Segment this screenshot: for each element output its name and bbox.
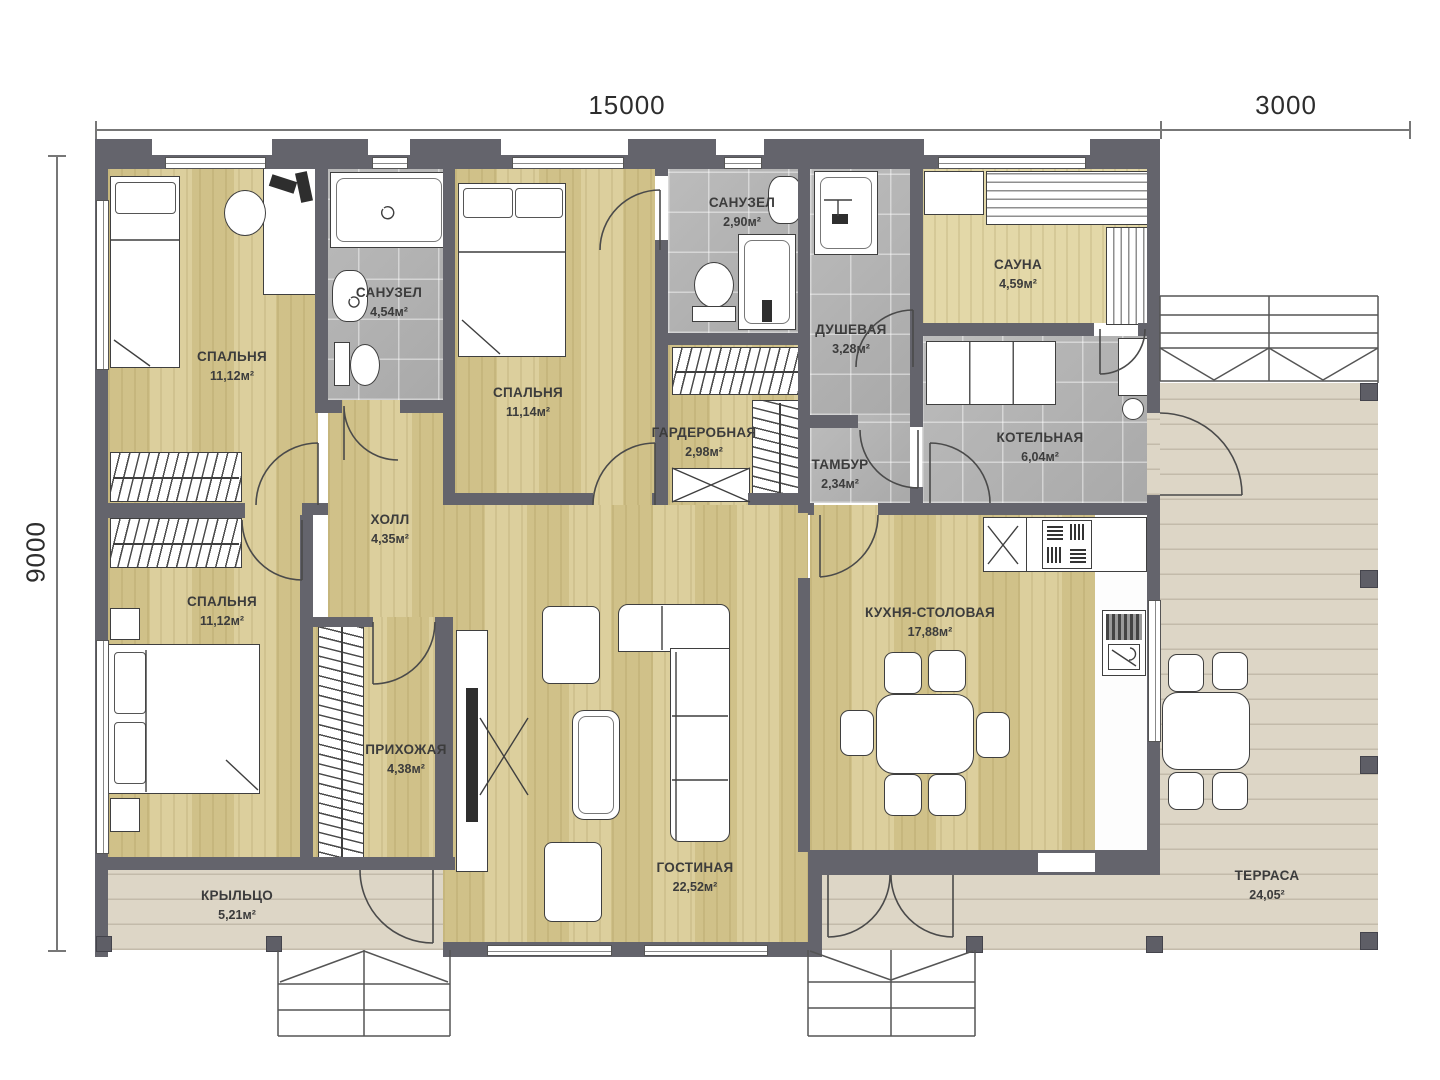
chair-icon — [884, 774, 922, 816]
door-opening-terrace — [1147, 413, 1160, 495]
toilet-tank-icon — [692, 306, 736, 322]
window — [165, 157, 266, 169]
dresser-icon — [672, 468, 750, 502]
shower-tray-icon — [814, 171, 878, 255]
wall — [922, 323, 1094, 336]
wall — [302, 503, 328, 515]
dim-label-main-width: 15000 — [588, 90, 665, 121]
room-label-porch: КРЫЛЬЦО 5,21м² — [201, 886, 273, 924]
dining-table-icon — [876, 694, 974, 774]
terrace-table-icon — [1162, 692, 1250, 770]
room-area: 17,88м² — [865, 623, 995, 641]
sauna-bench-icon — [1106, 227, 1148, 325]
wall-bottom-kitchen — [808, 850, 1160, 875]
terrace-post — [1146, 936, 1163, 953]
room-area: 22,52м² — [657, 878, 734, 896]
room-label-bedroom1: СПАЛЬНЯ 11,12м² — [197, 347, 267, 385]
boiler-tank-icon — [1122, 398, 1144, 420]
tv-icon — [466, 688, 478, 822]
sink-bowl-icon — [1108, 644, 1140, 670]
window — [487, 945, 612, 956]
wall — [798, 578, 810, 852]
floor-plan: 15000 3000 9000 — [0, 0, 1440, 1080]
shower-column-icon — [762, 300, 772, 322]
room-name: СПАЛЬНЯ — [187, 592, 257, 612]
window — [512, 157, 624, 169]
room-area: 2,98м² — [652, 443, 757, 461]
pillow-icon — [114, 722, 146, 784]
porch-post — [266, 936, 282, 952]
room-area: 11,14м² — [493, 403, 563, 421]
room-area: 4,59м² — [994, 275, 1042, 293]
dim-label-terrace-width: 3000 — [1255, 90, 1317, 121]
dim-label-height: 9000 — [21, 521, 52, 583]
burner-icon — [1047, 524, 1063, 540]
sauna-stove-icon — [924, 171, 984, 215]
toilet-tank-icon — [334, 342, 350, 386]
wall — [95, 503, 245, 518]
room-name: ДУШЕВАЯ — [815, 320, 886, 340]
nightstand-icon — [110, 608, 140, 640]
room-area: 2,34м² — [812, 475, 869, 493]
armchair-icon — [544, 842, 602, 922]
dim-tick — [1409, 121, 1411, 139]
chair-icon — [1168, 654, 1204, 692]
wall — [1138, 323, 1148, 336]
window — [938, 157, 1086, 169]
bathtub-icon — [330, 172, 448, 248]
dim-line-top — [95, 129, 1410, 131]
wall — [443, 493, 593, 505]
dim-tick — [48, 155, 66, 157]
wall — [315, 400, 342, 413]
drainer-icon — [1106, 614, 1142, 640]
room-label-bathroom2: САНУЗЕЛ 2,90м² — [709, 193, 775, 231]
wall — [798, 505, 810, 513]
burner-icon — [1070, 547, 1086, 563]
window — [96, 640, 109, 854]
burner-icon — [1047, 547, 1063, 563]
wall — [655, 169, 668, 176]
room-name: ГОСТИНАЯ — [657, 858, 734, 878]
sofa-icon — [670, 648, 730, 842]
pillow-icon — [115, 182, 176, 214]
chair-icon — [1212, 772, 1248, 810]
room-name: САНУЗЕЛ — [709, 193, 775, 213]
terrace-post — [1360, 383, 1378, 401]
room-name: СПАЛЬНЯ — [493, 383, 563, 403]
terrace-post — [1360, 570, 1378, 588]
sofa-icon — [618, 604, 730, 652]
porch-post — [96, 936, 112, 952]
chair-icon — [1212, 652, 1248, 690]
terrace-post — [1360, 932, 1378, 950]
room-label-hall: ХОЛЛ 4,35м² — [371, 510, 410, 548]
room-label-kitchen: КУХНЯ-СТОЛОВАЯ 17,88м² — [865, 603, 995, 641]
closet-icon — [318, 624, 364, 862]
room-label-shower: ДУШЕВАЯ 3,28м² — [815, 320, 886, 358]
wall — [300, 627, 313, 867]
wall — [400, 400, 443, 413]
wall — [300, 515, 313, 627]
wall-bottom-left — [95, 857, 455, 870]
window — [644, 945, 768, 956]
dim-tick — [48, 950, 66, 952]
room-label-terrace: ТЕРРАСА 24,05² — [1235, 866, 1300, 904]
sauna-bench-icon — [986, 171, 1148, 225]
room-label-bedroom3: СПАЛЬНЯ 11,12м² — [187, 592, 257, 630]
room-name: САУНА — [994, 255, 1042, 275]
wall-right — [1147, 155, 1160, 875]
room-label-bathroom1: САНУЗЕЛ 4,54м² — [356, 283, 422, 321]
wall — [655, 333, 810, 345]
wall — [878, 503, 1160, 515]
room-area: 3,28м² — [815, 340, 886, 358]
stairs-icon — [278, 950, 975, 1036]
window — [724, 157, 762, 169]
wall — [303, 617, 373, 627]
wall — [798, 169, 810, 505]
room-label-bedroom2: СПАЛЬНЯ 11,14м² — [493, 383, 563, 421]
burner-icon — [1070, 524, 1086, 540]
room-area: 11,12м² — [187, 612, 257, 630]
room-area: 2,90м² — [709, 213, 775, 231]
room-label-entry: ПРИХОЖАЯ 4,38м² — [365, 740, 446, 778]
window — [1148, 600, 1161, 742]
dim-tick — [95, 121, 97, 139]
dim-tick — [1160, 121, 1162, 139]
terrace-post — [966, 936, 983, 953]
wall — [810, 415, 858, 428]
door-opening-kitchen-terrace — [1038, 853, 1095, 872]
pillow-icon — [114, 652, 146, 714]
nightstand-icon — [110, 798, 140, 832]
room-label-boiler: КОТЕЛЬНАЯ 6,04м² — [996, 428, 1083, 466]
railing-icon — [1160, 296, 1378, 383]
room-area: 4,38м² — [365, 760, 446, 778]
boiler-equipment-icon — [926, 341, 1056, 405]
room-name: САНУЗЕЛ — [356, 283, 422, 303]
dim-line-left — [56, 155, 58, 952]
room-area: 4,35м² — [371, 530, 410, 548]
pillow-icon — [463, 188, 513, 218]
toilet-icon — [350, 344, 380, 386]
wall — [910, 169, 923, 427]
room-label-wardrobe: ГАРДЕРОБНАЯ 2,98м² — [652, 423, 757, 461]
room-area: 4,54м² — [356, 303, 422, 321]
room-label-vestibule: ТАМБУР 2,34м² — [812, 455, 869, 493]
window — [96, 200, 109, 370]
chair-icon — [1168, 772, 1204, 810]
room-area: 11,12м² — [197, 367, 267, 385]
room-name: СПАЛЬНЯ — [197, 347, 267, 367]
room-name: ТЕРРАСА — [1235, 866, 1300, 886]
room-name: ХОЛЛ — [371, 510, 410, 530]
clothes-rail-icon — [672, 347, 806, 395]
room-floor-living — [443, 505, 808, 942]
room-name: ГАРДЕРОБНАЯ — [652, 423, 757, 443]
chair-icon — [976, 712, 1010, 758]
terrace-post — [1360, 756, 1378, 774]
room-label-living: ГОСТИНАЯ 22,52м² — [657, 858, 734, 896]
kitchen-sink-icon — [983, 517, 1027, 572]
desk-chair-icon — [224, 190, 266, 236]
room-name: ТАМБУР — [812, 455, 869, 475]
wall — [655, 240, 668, 505]
toilet-icon — [694, 262, 734, 308]
room-name: КУХНЯ-СТОЛОВАЯ — [865, 603, 995, 623]
wardrobe-icon — [110, 452, 242, 502]
chair-icon — [928, 774, 966, 816]
wall — [808, 875, 822, 957]
room-area: 24,05² — [1235, 886, 1300, 904]
boiler-icon — [1118, 338, 1148, 396]
wall — [443, 169, 455, 505]
room-name: ПРИХОЖАЯ — [365, 740, 446, 760]
shower-head-icon — [832, 214, 848, 224]
room-name: КРЫЛЬЦО — [201, 886, 273, 906]
room-area: 5,21м² — [201, 906, 273, 924]
room-label-sauna: САУНА 4,59м² — [994, 255, 1042, 293]
room-floor-hall — [328, 400, 443, 617]
armchair-icon — [542, 606, 600, 684]
window — [372, 157, 408, 169]
room-area: 6,04м² — [996, 448, 1083, 466]
coffee-table-icon — [572, 710, 620, 820]
chair-icon — [928, 650, 966, 692]
chair-icon — [884, 652, 922, 694]
wall — [315, 169, 328, 413]
wardrobe-icon — [110, 518, 242, 568]
chair-icon — [840, 710, 874, 756]
room-name: КОТЕЛЬНАЯ — [996, 428, 1083, 448]
pillow-icon — [515, 188, 563, 218]
